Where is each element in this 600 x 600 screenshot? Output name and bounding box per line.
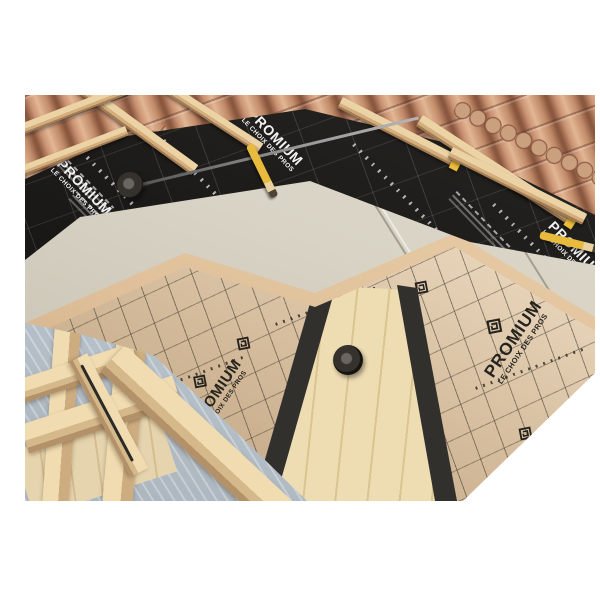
- tape-roll: [333, 345, 363, 375]
- promium-brand-mark: PROMIUM LE CHOIX DES PROS: [461, 284, 553, 386]
- promium-logo-icon: [232, 332, 256, 356]
- roof-cutaway-illustration: M 80 PROMIUM LE CHOIX DES PROS: [25, 95, 595, 501]
- promium-roof-system-render: M 80 PROMIUM LE CHOIX DES PROS: [0, 0, 600, 600]
- tape-roll: [117, 172, 143, 198]
